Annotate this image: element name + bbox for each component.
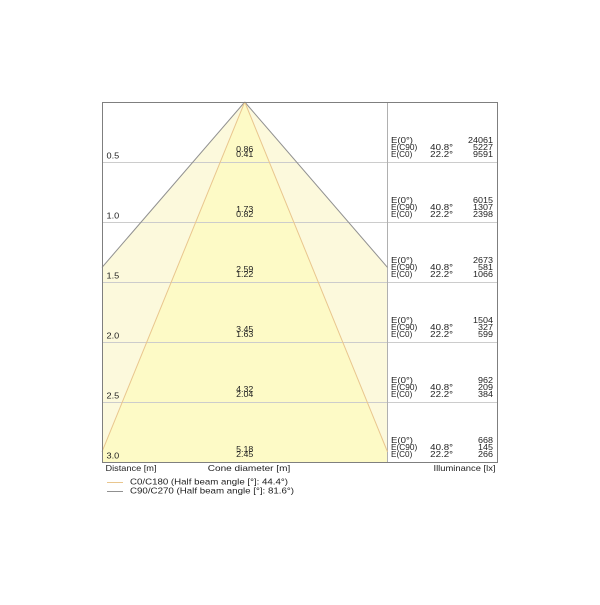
svg-text:22.2°: 22.2° [430, 270, 453, 279]
svg-text:1.63: 1.63 [236, 330, 254, 339]
svg-text:2.0: 2.0 [107, 332, 120, 341]
svg-text:266: 266 [478, 450, 493, 459]
svg-text:22.2°: 22.2° [430, 450, 453, 459]
svg-text:1.5: 1.5 [107, 272, 120, 281]
svg-text:22.2°: 22.2° [430, 390, 453, 399]
svg-text:C0/C180 (Half beam angle [°]:: C0/C180 (Half beam angle [°]: 44.4°) [130, 478, 288, 487]
svg-text:22.2°: 22.2° [430, 150, 453, 159]
svg-text:E(C0): E(C0) [391, 390, 413, 399]
svg-text:2.5: 2.5 [107, 392, 120, 401]
svg-text:0.5: 0.5 [107, 152, 120, 161]
svg-text:E(C0): E(C0) [391, 150, 413, 159]
svg-text:599: 599 [478, 330, 493, 339]
svg-text:E(C0): E(C0) [391, 450, 413, 459]
svg-text:E(C0): E(C0) [391, 270, 413, 279]
svg-text:22.2°: 22.2° [430, 210, 453, 219]
svg-text:9591: 9591 [473, 150, 493, 159]
svg-text:2398: 2398 [473, 210, 493, 219]
svg-text:C90/C270 (Half beam angle [°]:: C90/C270 (Half beam angle [°]: 81.6°) [130, 487, 294, 496]
svg-text:1.22: 1.22 [236, 270, 254, 279]
svg-text:Illuminance [lx]: Illuminance [lx] [434, 464, 496, 473]
svg-text:3.0: 3.0 [107, 452, 120, 461]
svg-text:2.04: 2.04 [236, 390, 254, 399]
svg-text:E(C0): E(C0) [391, 210, 413, 219]
svg-text:0.41: 0.41 [236, 150, 254, 159]
svg-text:1.0: 1.0 [107, 212, 120, 221]
svg-text:2.45: 2.45 [236, 450, 254, 459]
svg-text:384: 384 [478, 390, 493, 399]
svg-text:Cone diameter [m]: Cone diameter [m] [208, 464, 291, 473]
svg-text:1066: 1066 [473, 270, 493, 279]
svg-text:22.2°: 22.2° [430, 330, 453, 339]
svg-text:0.82: 0.82 [236, 210, 254, 219]
svg-text:E(C0): E(C0) [391, 330, 413, 339]
svg-text:Distance [m]: Distance [m] [106, 464, 157, 473]
